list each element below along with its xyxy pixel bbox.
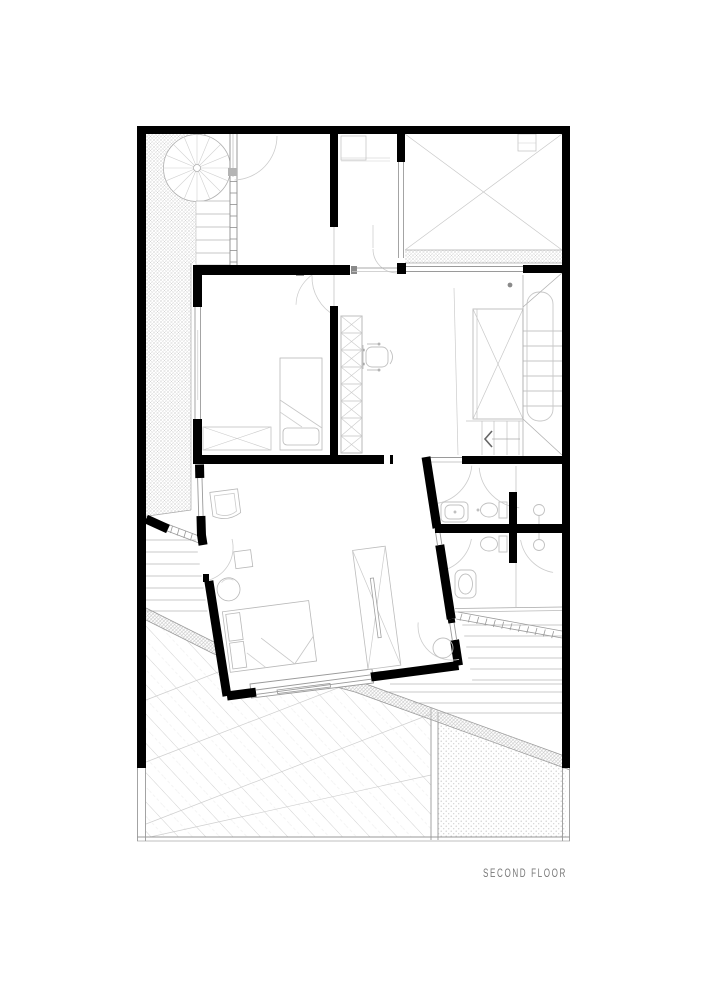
svg-text:SECOND FLOOR: SECOND FLOOR	[483, 866, 567, 880]
